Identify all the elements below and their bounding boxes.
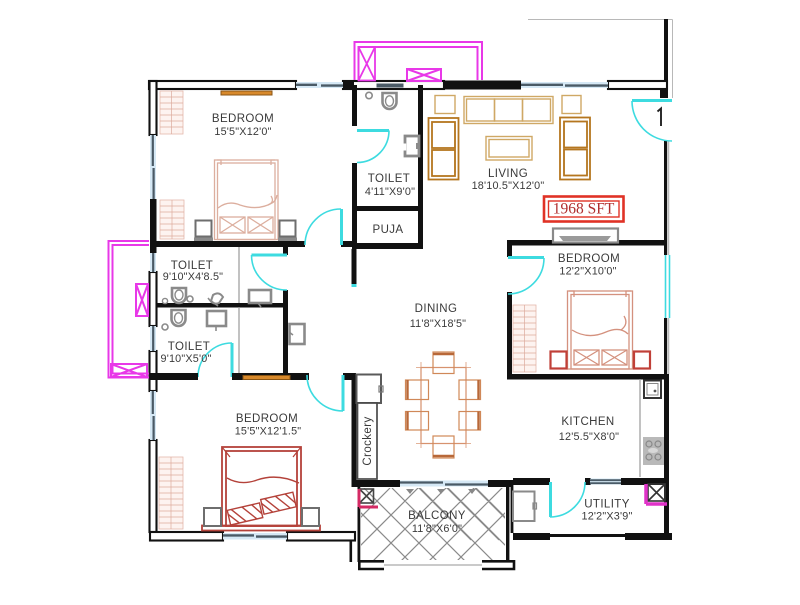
svg-text:4'11"X9'0": 4'11"X9'0" <box>365 186 415 198</box>
svg-text:12'2"X3'9": 12'2"X3'9" <box>581 511 632 523</box>
svg-text:11'8"X6'0": 11'8"X6'0" <box>412 523 462 535</box>
svg-text:BEDROOM: BEDROOM <box>558 253 620 265</box>
svg-text:KITCHEN: KITCHEN <box>561 416 614 428</box>
svg-text:BEDROOM: BEDROOM <box>236 413 298 425</box>
svg-text:DINING: DINING <box>415 303 458 315</box>
svg-text:BALCONY: BALCONY <box>408 510 466 522</box>
svg-text:12'2"X10'0": 12'2"X10'0" <box>559 266 616 278</box>
svg-text:11'8"X18'5": 11'8"X18'5" <box>410 318 466 330</box>
svg-text:UTILITY: UTILITY <box>584 499 630 511</box>
svg-text:9'10"X5'0": 9'10"X5'0" <box>160 353 211 365</box>
svg-text:1968 SFT: 1968 SFT <box>553 201 615 218</box>
svg-text:15'5"X12'0": 15'5"X12'0" <box>214 126 271 138</box>
svg-text:18'10.5"X12'0": 18'10.5"X12'0" <box>472 180 545 192</box>
svg-text:12'5.5"X8'0": 12'5.5"X8'0" <box>559 431 619 443</box>
svg-text:BEDROOM: BEDROOM <box>212 113 274 125</box>
svg-text:LIVING: LIVING <box>488 168 528 180</box>
svg-text:9'10"X4'8.5": 9'10"X4'8.5" <box>163 271 223 283</box>
svg-text:15'5"X12'1.5": 15'5"X12'1.5" <box>235 426 302 438</box>
svg-text:TOILET: TOILET <box>168 341 210 353</box>
svg-text:Crockery: Crockery <box>362 416 374 465</box>
svg-text:PUJA: PUJA <box>373 224 404 236</box>
svg-text:TOILET: TOILET <box>368 173 410 185</box>
